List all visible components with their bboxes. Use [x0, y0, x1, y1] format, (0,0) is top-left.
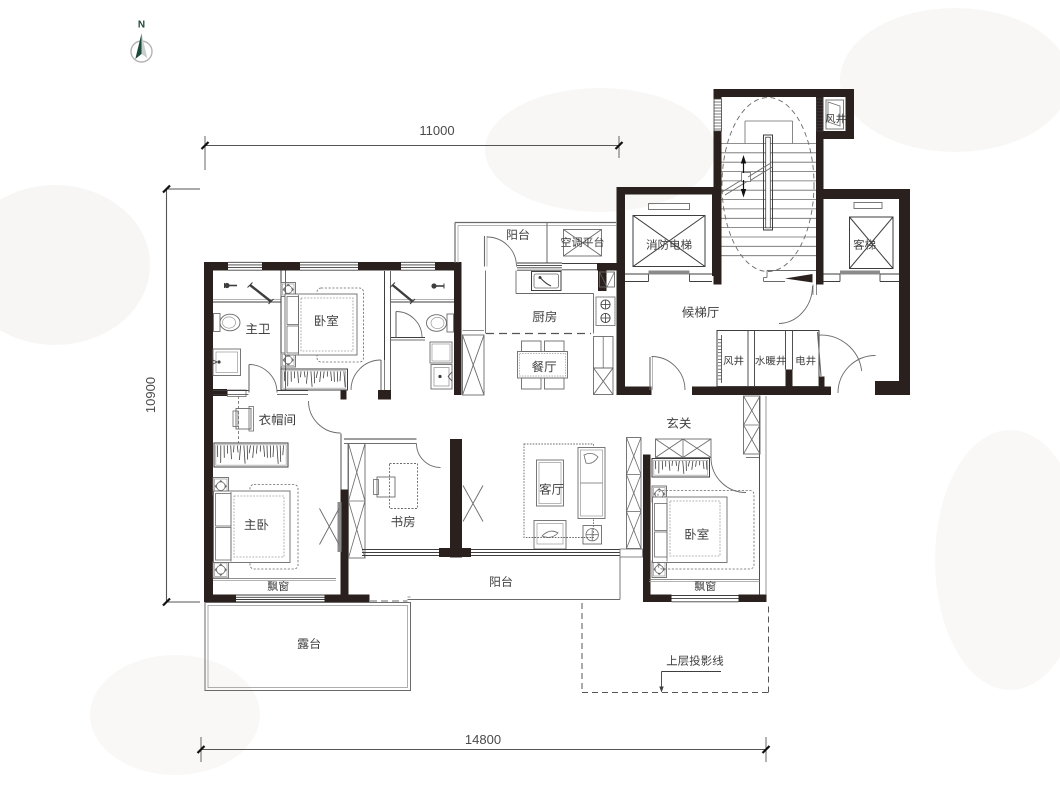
svg-text:14800: 14800 — [465, 732, 501, 747]
svg-text:11000: 11000 — [419, 123, 454, 138]
svg-text:N: N — [138, 20, 145, 31]
svg-text:10900: 10900 — [143, 377, 158, 413]
